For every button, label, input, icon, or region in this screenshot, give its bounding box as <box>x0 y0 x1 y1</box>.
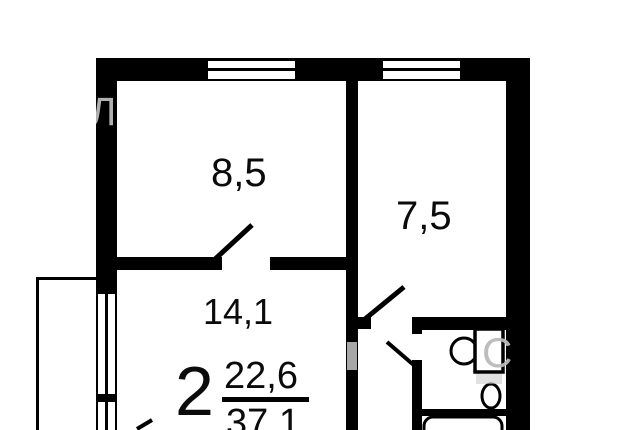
wall-room1-room2-right <box>270 257 358 270</box>
door-leaf-kitchen <box>365 287 404 319</box>
door-leaf-bottom-edge <box>137 420 152 429</box>
room-area-label-top-right: 7,5 <box>396 196 452 236</box>
wall-vertical-main <box>346 80 358 430</box>
balcony-wall-top <box>36 277 96 280</box>
floor-plan: Л С 8,5 7,5 14,1 2 22,6 37,1 <box>0 0 640 430</box>
balcony-wall-left <box>36 277 39 430</box>
total-area-label: 37,1 <box>226 404 300 430</box>
window-glass-line <box>105 294 108 430</box>
sink-icon <box>482 384 500 408</box>
bathtub-icon <box>424 417 502 430</box>
wall-bathroom-left-upper <box>412 317 422 334</box>
rooms-count-label: 2 <box>175 356 214 426</box>
wall-room1-room2-left <box>117 257 222 270</box>
door-leaf-room-top-left <box>213 225 252 261</box>
room-area-label-middle: 14,1 <box>203 294 273 330</box>
window-room-top-left <box>208 61 295 79</box>
wall-outer-right <box>506 58 530 430</box>
room-area-label-top-left: 8,5 <box>211 153 267 193</box>
toilet-bowl-icon <box>451 338 477 364</box>
wall-outer-top <box>96 58 530 81</box>
window-glass-line <box>208 68 295 71</box>
wall-bathroom-left-lower <box>412 360 422 430</box>
wall-bathroom-top <box>412 317 506 330</box>
window-glass-line <box>383 68 460 71</box>
watermark-fragment-center <box>347 342 357 370</box>
living-area-label: 22,6 <box>224 357 298 395</box>
watermark-smudge <box>476 374 502 384</box>
window-room-top-right <box>383 61 460 79</box>
watermark-fragment-left: Л <box>96 92 120 130</box>
window-balcony <box>96 292 117 430</box>
wall-wc-bath-divider <box>422 409 506 416</box>
wall-kitchen-door-stub <box>358 317 371 329</box>
window-mullion <box>96 394 117 402</box>
watermark-fragment-right: С <box>482 334 522 374</box>
